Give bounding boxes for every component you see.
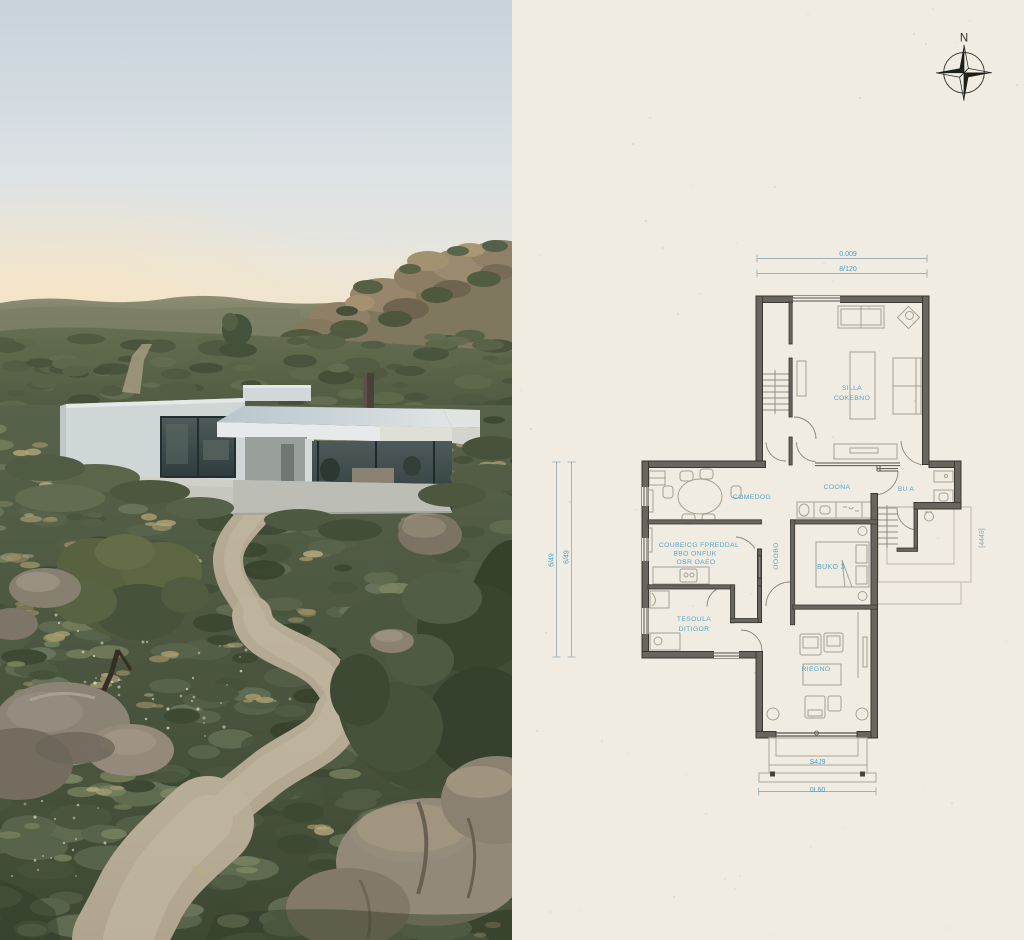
svg-text:S4J9: S4J9: [810, 759, 826, 766]
svg-text:TESOULA: TESOULA: [677, 616, 711, 623]
svg-text:8/120: 8/120: [839, 266, 857, 273]
svg-text:COUBEICG FPREDDAL: COUBEICG FPREDDAL: [659, 542, 739, 549]
svg-text:6/49: 6/49: [549, 553, 556, 567]
svg-text:N: N: [960, 33, 968, 45]
svg-text:SILLA: SILLA: [842, 385, 862, 392]
svg-text:0.009: 0.009: [839, 251, 857, 258]
svg-text:[4449]: [4449]: [979, 528, 986, 548]
svg-text:OOOBO: OOOBO: [773, 542, 780, 569]
svg-text:OSR OAEO: OSR OAEO: [676, 559, 715, 566]
svg-text:COMEDOG: COMEDOG: [733, 494, 771, 501]
svg-text:BU A: BU A: [898, 486, 915, 493]
svg-text:DITIGOR: DITIGOR: [679, 626, 710, 633]
svg-text:RIEGNO: RIEGNO: [802, 666, 831, 673]
svg-text:BUKO 3: BUKO 3: [817, 564, 845, 571]
svg-text:BBO ONFUK: BBO ONFUK: [673, 551, 716, 558]
svg-text:COKEBNO: COKEBNO: [834, 395, 870, 402]
svg-text:COONA: COONA: [824, 484, 851, 491]
svg-text:0I.60: 0I.60: [810, 787, 826, 794]
svg-text:6/49: 6/49: [564, 550, 571, 564]
